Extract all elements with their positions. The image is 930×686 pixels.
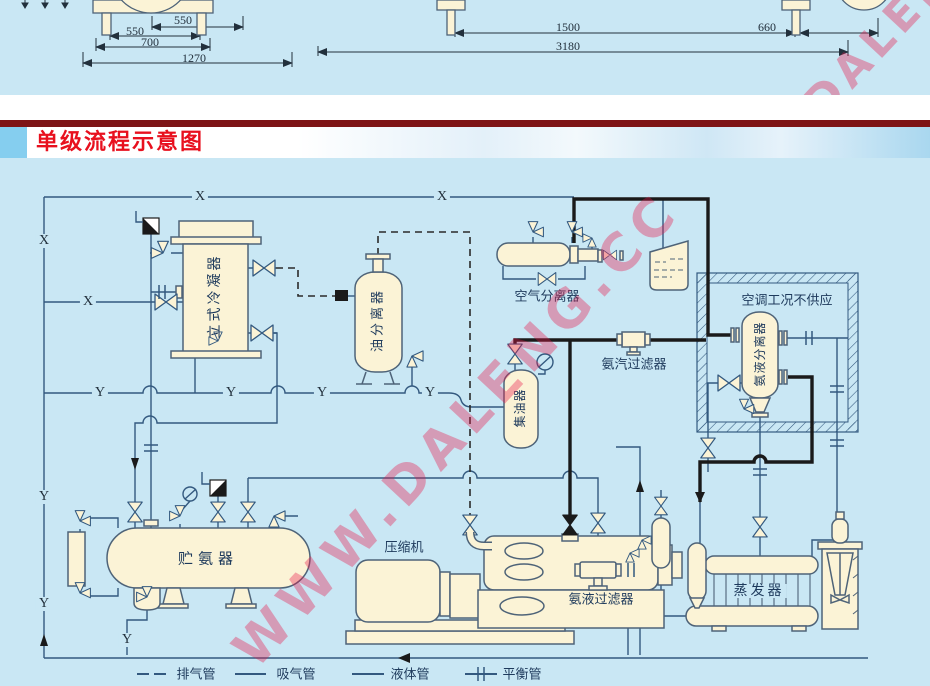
pipe-label-y: Y (422, 386, 438, 400)
white-gap (0, 95, 930, 120)
pipe-label-y: Y (36, 597, 52, 611)
dimension-drawing-strip: 550 550 700 1270 1500 3180 660 WWW.DALEN… (0, 0, 930, 95)
receiver-label: 贮氨器 (178, 552, 238, 567)
level-switch-icon (136, 211, 159, 234)
agitator-unit (818, 512, 862, 629)
dim-660: 660 (758, 21, 776, 33)
dim-550-upper: 550 (174, 14, 192, 26)
drum-vessel (652, 518, 670, 568)
dim-3180: 3180 (556, 40, 580, 52)
pipe-label-y: Y (223, 386, 239, 400)
pipe-label-x: X (36, 234, 52, 248)
page-title: 单级流程示意图 (27, 127, 204, 158)
condenser-label: 立式冷凝器 (208, 254, 222, 339)
oil-collector-label: 集油器 (514, 388, 526, 427)
dimension-drawing-geometry (0, 0, 930, 95)
pipe-label-y: Y (92, 386, 108, 400)
oil-separator-label: 油分离器 (372, 288, 385, 352)
pipe-label-x: X (434, 190, 450, 204)
vapor-filter-label: 氨汽过滤器 (601, 359, 666, 372)
liquid-separator-label: 氨液分离器 (754, 321, 766, 386)
black-tee-fitting (335, 290, 348, 301)
section-banner: 单级流程示意图 (0, 127, 930, 158)
air-separator-label: 空气分离器 (514, 291, 579, 304)
vapor-filter-body (617, 332, 650, 355)
banner-red-rule (0, 120, 930, 127)
pipe-label-x: X (80, 295, 96, 309)
legend-balance-label: 平衡管 (502, 669, 541, 682)
legend-suction-label: 吸气管 (276, 669, 315, 682)
flow-diagram: X X X X Y Y Y Y Y Y Y 立式冷凝器 油分离器 空气分离器 氨… (0, 158, 930, 686)
ac-note-label: 空调工况不供应 (741, 295, 832, 308)
pressure-switch-icon (202, 472, 226, 496)
liquid-filter-label: 氨液过滤器 (568, 594, 633, 607)
water-tank (650, 241, 688, 290)
pipe-label-x: X (192, 190, 208, 204)
pipe-label-y: Y (119, 633, 135, 647)
page: { "title": { "text": "单级流程示意图" }, "water… (0, 0, 930, 686)
dim-700: 700 (141, 36, 159, 48)
dim-1270: 1270 (182, 52, 206, 64)
compressor-label: 压缩机 (384, 542, 423, 555)
legend-exhaust-label: 排气管 (176, 669, 215, 682)
banner-accent-square (0, 127, 27, 158)
evaporator-label: 蒸发器 (732, 584, 787, 598)
dim-1500: 1500 (556, 21, 580, 33)
pipe-label-y: Y (314, 386, 330, 400)
flow-diagram-geometry (0, 158, 930, 686)
pipe-label-y: Y (36, 490, 52, 504)
pressure-gauges (183, 354, 553, 501)
legend-liquid-label: 液体管 (390, 669, 429, 682)
